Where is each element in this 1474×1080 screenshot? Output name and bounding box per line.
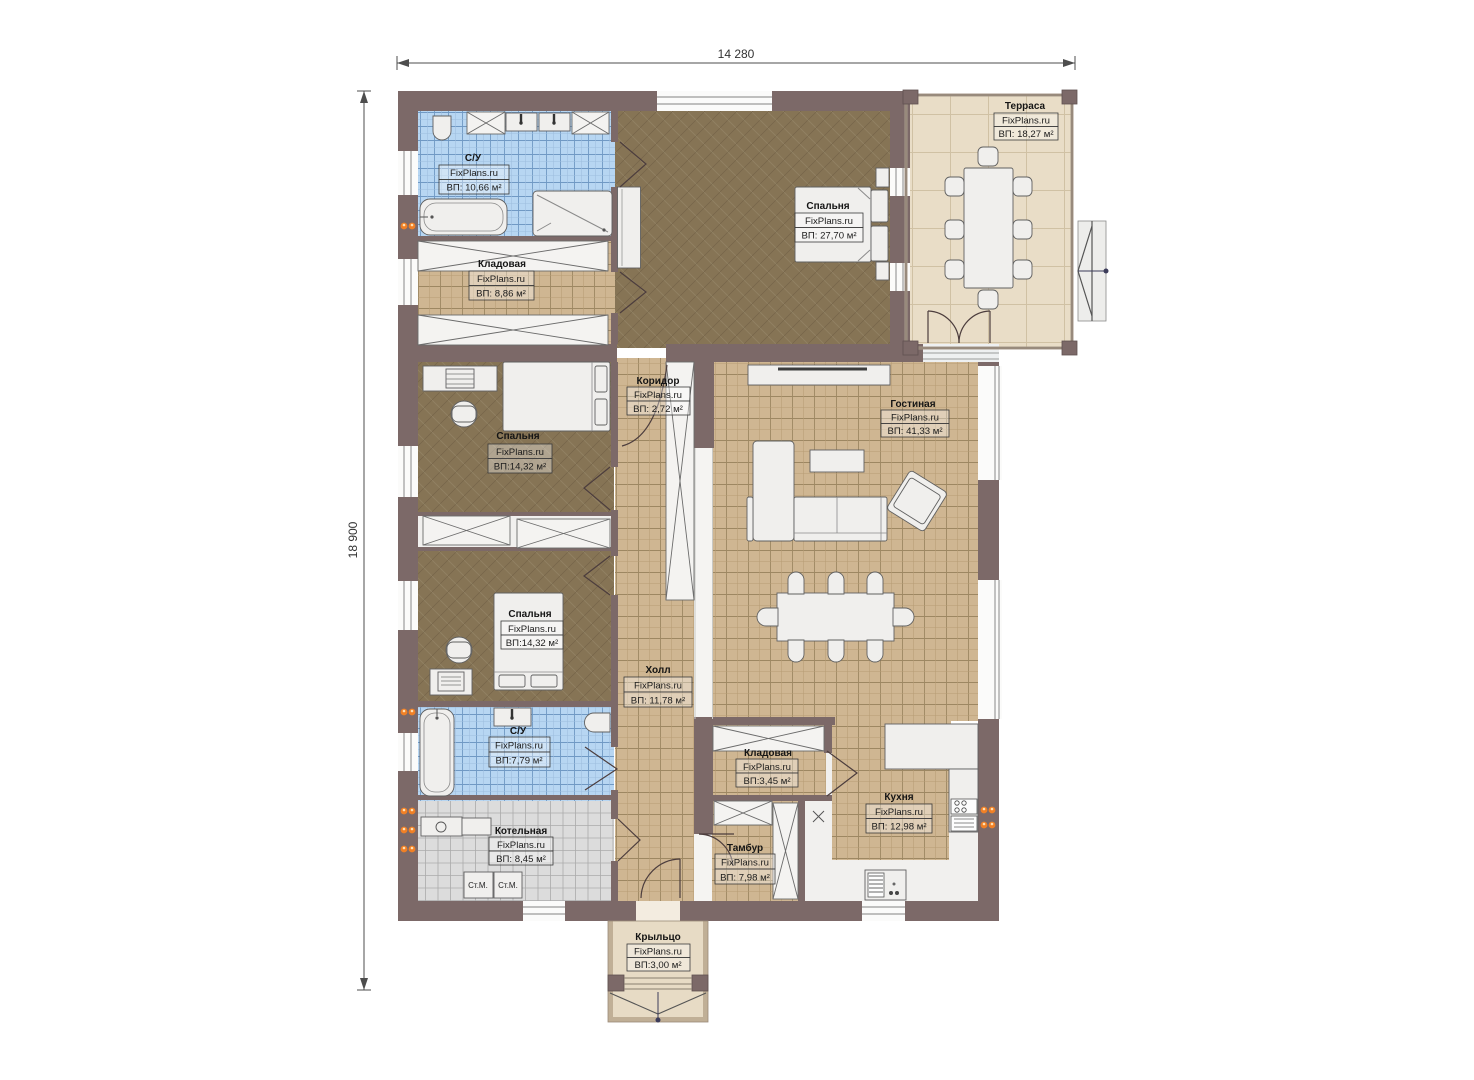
svg-text:Ст.М.: Ст.М. bbox=[498, 881, 518, 890]
svg-text:Кладовая: Кладовая bbox=[478, 259, 526, 270]
svg-text:ВП:3,00 м²: ВП:3,00 м² bbox=[634, 960, 682, 971]
svg-text:FixPlans.ru: FixPlans.ru bbox=[450, 168, 498, 179]
svg-text:FixPlans.ru: FixPlans.ru bbox=[721, 858, 769, 869]
svg-text:FixPlans.ru: FixPlans.ru bbox=[891, 413, 939, 424]
svg-text:FixPlans.ru: FixPlans.ru bbox=[743, 762, 791, 773]
svg-text:FixPlans.ru: FixPlans.ru bbox=[497, 840, 545, 851]
svg-text:FixPlans.ru: FixPlans.ru bbox=[508, 624, 556, 635]
svg-text:FixPlans.ru: FixPlans.ru bbox=[875, 807, 923, 818]
svg-text:FixPlans.ru: FixPlans.ru bbox=[495, 741, 543, 752]
svg-text:Спальня: Спальня bbox=[496, 431, 539, 442]
svg-text:Крыльцо: Крыльцо bbox=[635, 932, 681, 943]
svg-text:Спальня: Спальня bbox=[806, 201, 849, 212]
svg-text:С/У: С/У bbox=[510, 726, 527, 737]
svg-text:18 900: 18 900 bbox=[346, 521, 360, 558]
svg-text:ВП: 18,27 м²: ВП: 18,27 м² bbox=[998, 129, 1054, 140]
svg-text:ВП: 8,45 м²: ВП: 8,45 м² bbox=[496, 854, 547, 865]
svg-text:ВП:7,79 м²: ВП:7,79 м² bbox=[495, 756, 543, 767]
svg-text:FixPlans.ru: FixPlans.ru bbox=[634, 681, 682, 692]
svg-text:FixPlans.ru: FixPlans.ru bbox=[1002, 116, 1050, 127]
svg-text:Котельная: Котельная bbox=[495, 826, 548, 837]
svg-text:Гостиная: Гостиная bbox=[890, 399, 935, 410]
svg-text:FixPlans.ru: FixPlans.ru bbox=[634, 390, 682, 401]
svg-text:FixPlans.ru: FixPlans.ru bbox=[496, 447, 544, 458]
svg-text:ВП:3,45 м²: ВП:3,45 м² bbox=[743, 776, 791, 787]
svg-text:ВП: 27,70 м²: ВП: 27,70 м² bbox=[801, 231, 857, 242]
svg-text:Кладовая: Кладовая bbox=[744, 748, 792, 759]
svg-text:14 280: 14 280 bbox=[718, 47, 755, 61]
svg-text:FixPlans.ru: FixPlans.ru bbox=[634, 947, 682, 958]
svg-text:ВП: 2,72 м²: ВП: 2,72 м² bbox=[633, 404, 684, 415]
svg-text:ВП: 41,33 м²: ВП: 41,33 м² bbox=[887, 426, 943, 437]
svg-text:Коридор: Коридор bbox=[636, 376, 679, 387]
svg-text:Ст.М.: Ст.М. bbox=[468, 881, 488, 890]
svg-text:ВП: 12,98 м²: ВП: 12,98 м² bbox=[871, 822, 927, 833]
svg-text:С/У: С/У bbox=[465, 153, 482, 164]
svg-text:ВП: 11,78 м²: ВП: 11,78 м² bbox=[631, 696, 686, 707]
svg-text:Спальня: Спальня bbox=[508, 609, 551, 620]
svg-text:ВП:14,32 м²: ВП:14,32 м² bbox=[506, 638, 559, 649]
svg-text:Терраса: Терраса bbox=[1005, 101, 1046, 112]
svg-text:Кухня: Кухня bbox=[884, 792, 913, 803]
svg-text:Холл: Холл bbox=[645, 665, 670, 676]
svg-text:FixPlans.ru: FixPlans.ru bbox=[477, 274, 525, 285]
svg-text:ВП: 8,86 м²: ВП: 8,86 м² bbox=[476, 289, 527, 300]
svg-text:ВП: 10,66 м²: ВП: 10,66 м² bbox=[446, 183, 502, 194]
svg-text:ВП:14,32 м²: ВП:14,32 м² bbox=[494, 462, 547, 473]
svg-text:Тамбур: Тамбур bbox=[727, 842, 763, 854]
svg-text:ВП: 7,98 м²: ВП: 7,98 м² bbox=[720, 873, 771, 884]
svg-text:FixPlans.ru: FixPlans.ru bbox=[805, 216, 853, 227]
